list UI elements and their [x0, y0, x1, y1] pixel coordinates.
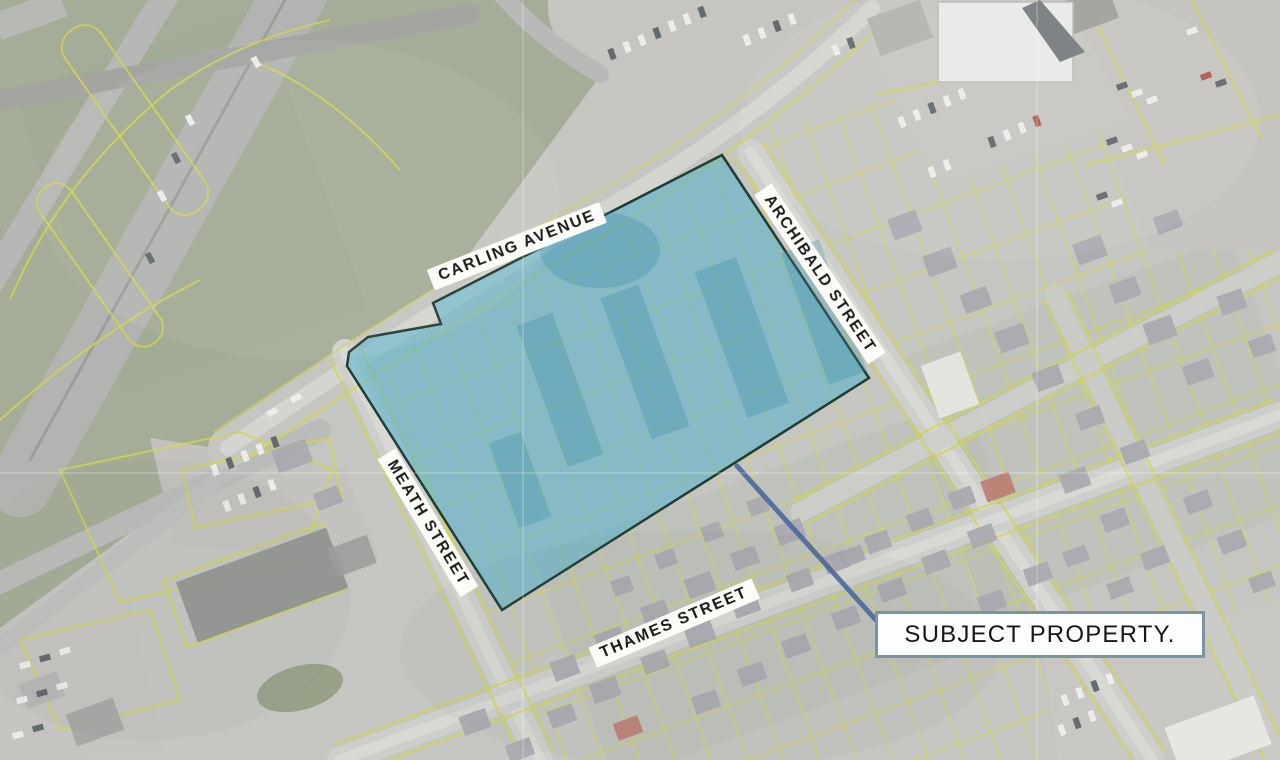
subject-property-callout: SUBJECT PROPERTY. — [875, 611, 1205, 658]
map-viewport: CARLING AVENUE ARCHIBALD STREET MEATH ST… — [0, 0, 1280, 760]
subject-property-callout-label: SUBJECT PROPERTY. — [904, 621, 1175, 649]
